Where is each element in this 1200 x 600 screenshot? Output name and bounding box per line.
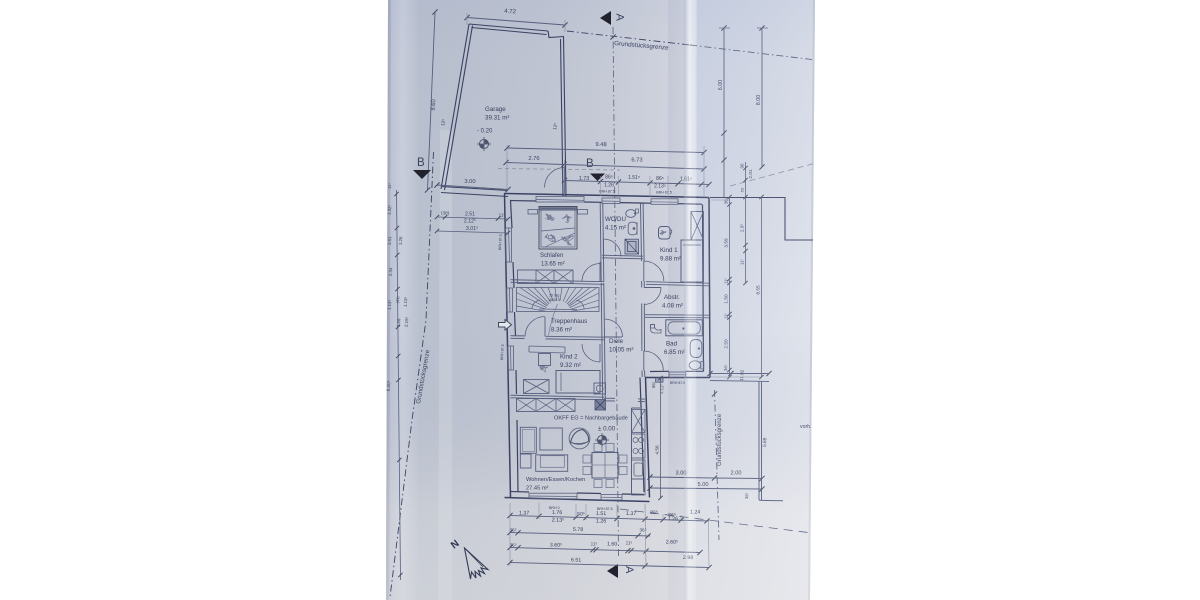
svg-text:9.48: 9.48 (595, 142, 606, 148)
svg-text:A: A (614, 14, 626, 22)
svg-text:Schlafen: Schlafen (540, 253, 563, 259)
svg-text:6.85 m²: 6.85 m² (664, 349, 685, 356)
svg-text:36⁵: 36⁵ (509, 542, 516, 547)
svg-text:Kind 1: Kind 1 (660, 247, 678, 254)
svg-text:16/30.5: 16/30.5 (548, 298, 560, 302)
svg-text:4.08 m²: 4.08 m² (662, 303, 683, 310)
svg-text:(38): (38) (441, 211, 450, 216)
svg-text:1.60: 1.60 (607, 541, 618, 547)
svg-text:3.00: 3.00 (464, 179, 475, 185)
svg-text:86⁵: 86⁵ (656, 176, 664, 182)
svg-text:1.51: 1.51 (596, 511, 607, 517)
svg-text:9.88 m²: 9.88 m² (660, 256, 681, 263)
svg-text:2.76: 2.76 (528, 156, 539, 162)
svg-text:11⁵: 11⁵ (499, 213, 506, 218)
svg-text:13.65 m²: 13.65 m² (541, 262, 565, 268)
svg-text:2.13⁵: 2.13⁵ (552, 517, 565, 523)
svg-text:4.15 m²: 4.15 m² (605, 225, 626, 232)
svg-text:36⁵: 36⁵ (509, 527, 516, 532)
svg-text:39.31 m²: 39.31 m² (485, 115, 509, 122)
svg-text:B: B (417, 157, 425, 169)
svg-text:WC/DU: WC/DU (605, 216, 626, 223)
svg-text:11⁵: 11⁵ (387, 182, 392, 188)
svg-text:1.13⁵: 1.13⁵ (403, 296, 409, 307)
svg-text:5.78: 5.78 (573, 527, 584, 533)
svg-text:1.37: 1.37 (519, 510, 530, 516)
svg-text:Diele: Diele (609, 338, 624, 345)
svg-text:1.26: 1.26 (604, 183, 614, 189)
svg-text:1.76: 1.76 (552, 510, 563, 516)
svg-text:2.51: 2.51 (465, 212, 475, 218)
svg-text:2.34: 2.34 (388, 267, 394, 276)
svg-text:BRH 87.5: BRH 87.5 (656, 191, 672, 195)
svg-text:Bad: Bad (666, 341, 678, 348)
svg-text:3.60⁵: 3.60⁵ (550, 542, 563, 548)
svg-text:Wohnen/Essen/Kochen: Wohnen/Essen/Kochen (526, 477, 585, 483)
svg-text:1.26: 1.26 (596, 518, 607, 524)
svg-text:11⁵: 11⁵ (591, 541, 598, 546)
svg-text:Garage: Garage (485, 106, 506, 113)
svg-text:4.72: 4.72 (504, 9, 517, 16)
svg-text:4.56: 4.56 (655, 445, 661, 455)
svg-text:2.60⁵: 2.60⁵ (666, 539, 679, 545)
svg-text:BRH 87.5: BRH 87.5 (599, 190, 615, 194)
svg-text:± 0.00: ± 0.00 (598, 426, 616, 433)
svg-text:9.32 m²: 9.32 m² (560, 362, 581, 369)
svg-text:27.45 m²: 27.45 m² (526, 486, 549, 492)
svg-text:1.37: 1.37 (626, 511, 637, 517)
svg-text:1.26: 1.26 (396, 318, 402, 327)
svg-text:BRH 87.5: BRH 87.5 (498, 234, 503, 250)
svg-text:Abstr.: Abstr. (664, 294, 680, 301)
svg-text:1.26: 1.26 (398, 236, 404, 245)
svg-text:1.32⁵: 1.32⁵ (387, 204, 393, 215)
svg-text:(41): (41) (395, 296, 401, 304)
svg-text:1.73: 1.73 (579, 176, 590, 182)
svg-text:6.51: 6.51 (571, 557, 582, 563)
svg-text:2.13⁵: 2.13⁵ (654, 184, 666, 190)
svg-text:1.51: 1.51 (387, 236, 393, 245)
svg-text:6.73: 6.73 (631, 158, 642, 164)
svg-text:BRH 87.5: BRH 87.5 (500, 344, 505, 360)
svg-text:Kind 2: Kind 2 (560, 354, 578, 361)
svg-text:86⁵: 86⁵ (650, 510, 658, 516)
svg-text:11⁵: 11⁵ (626, 540, 633, 545)
svg-text:1.26: 1.26 (668, 516, 678, 522)
svg-text:BRH 87.5: BRH 87.5 (670, 381, 685, 385)
svg-text:86⁵: 86⁵ (605, 175, 613, 181)
svg-text:10.05 m²: 10.05 m² (609, 347, 633, 354)
svg-text:3.01⁵: 3.01⁵ (466, 226, 478, 232)
svg-text:2.19⁵: 2.19⁵ (404, 316, 410, 327)
svg-text:OKFF EG = Nachbargebäude: OKFF EG = Nachbargebäude (554, 416, 628, 422)
svg-text:86⁵: 86⁵ (651, 381, 656, 388)
svg-text:50⁵: 50⁵ (577, 511, 585, 517)
svg-text:8.60: 8.60 (431, 99, 438, 111)
svg-text:1.51⁵: 1.51⁵ (628, 175, 640, 181)
svg-text:Treppenhaus: Treppenhaus (551, 318, 587, 325)
svg-text:1.13⁵: 1.13⁵ (387, 299, 393, 310)
svg-text:- 0.20: - 0.20 (477, 129, 493, 135)
svg-text:8.36 m²: 8.36 m² (551, 327, 572, 334)
svg-text:A: A (623, 566, 635, 574)
svg-text:15 Stg: 15 Stg (549, 294, 559, 298)
svg-text:2.12⁵: 2.12⁵ (464, 219, 476, 225)
svg-text:2.12⁵: 2.12⁵ (659, 384, 665, 394)
svg-text:B: B (586, 158, 594, 170)
